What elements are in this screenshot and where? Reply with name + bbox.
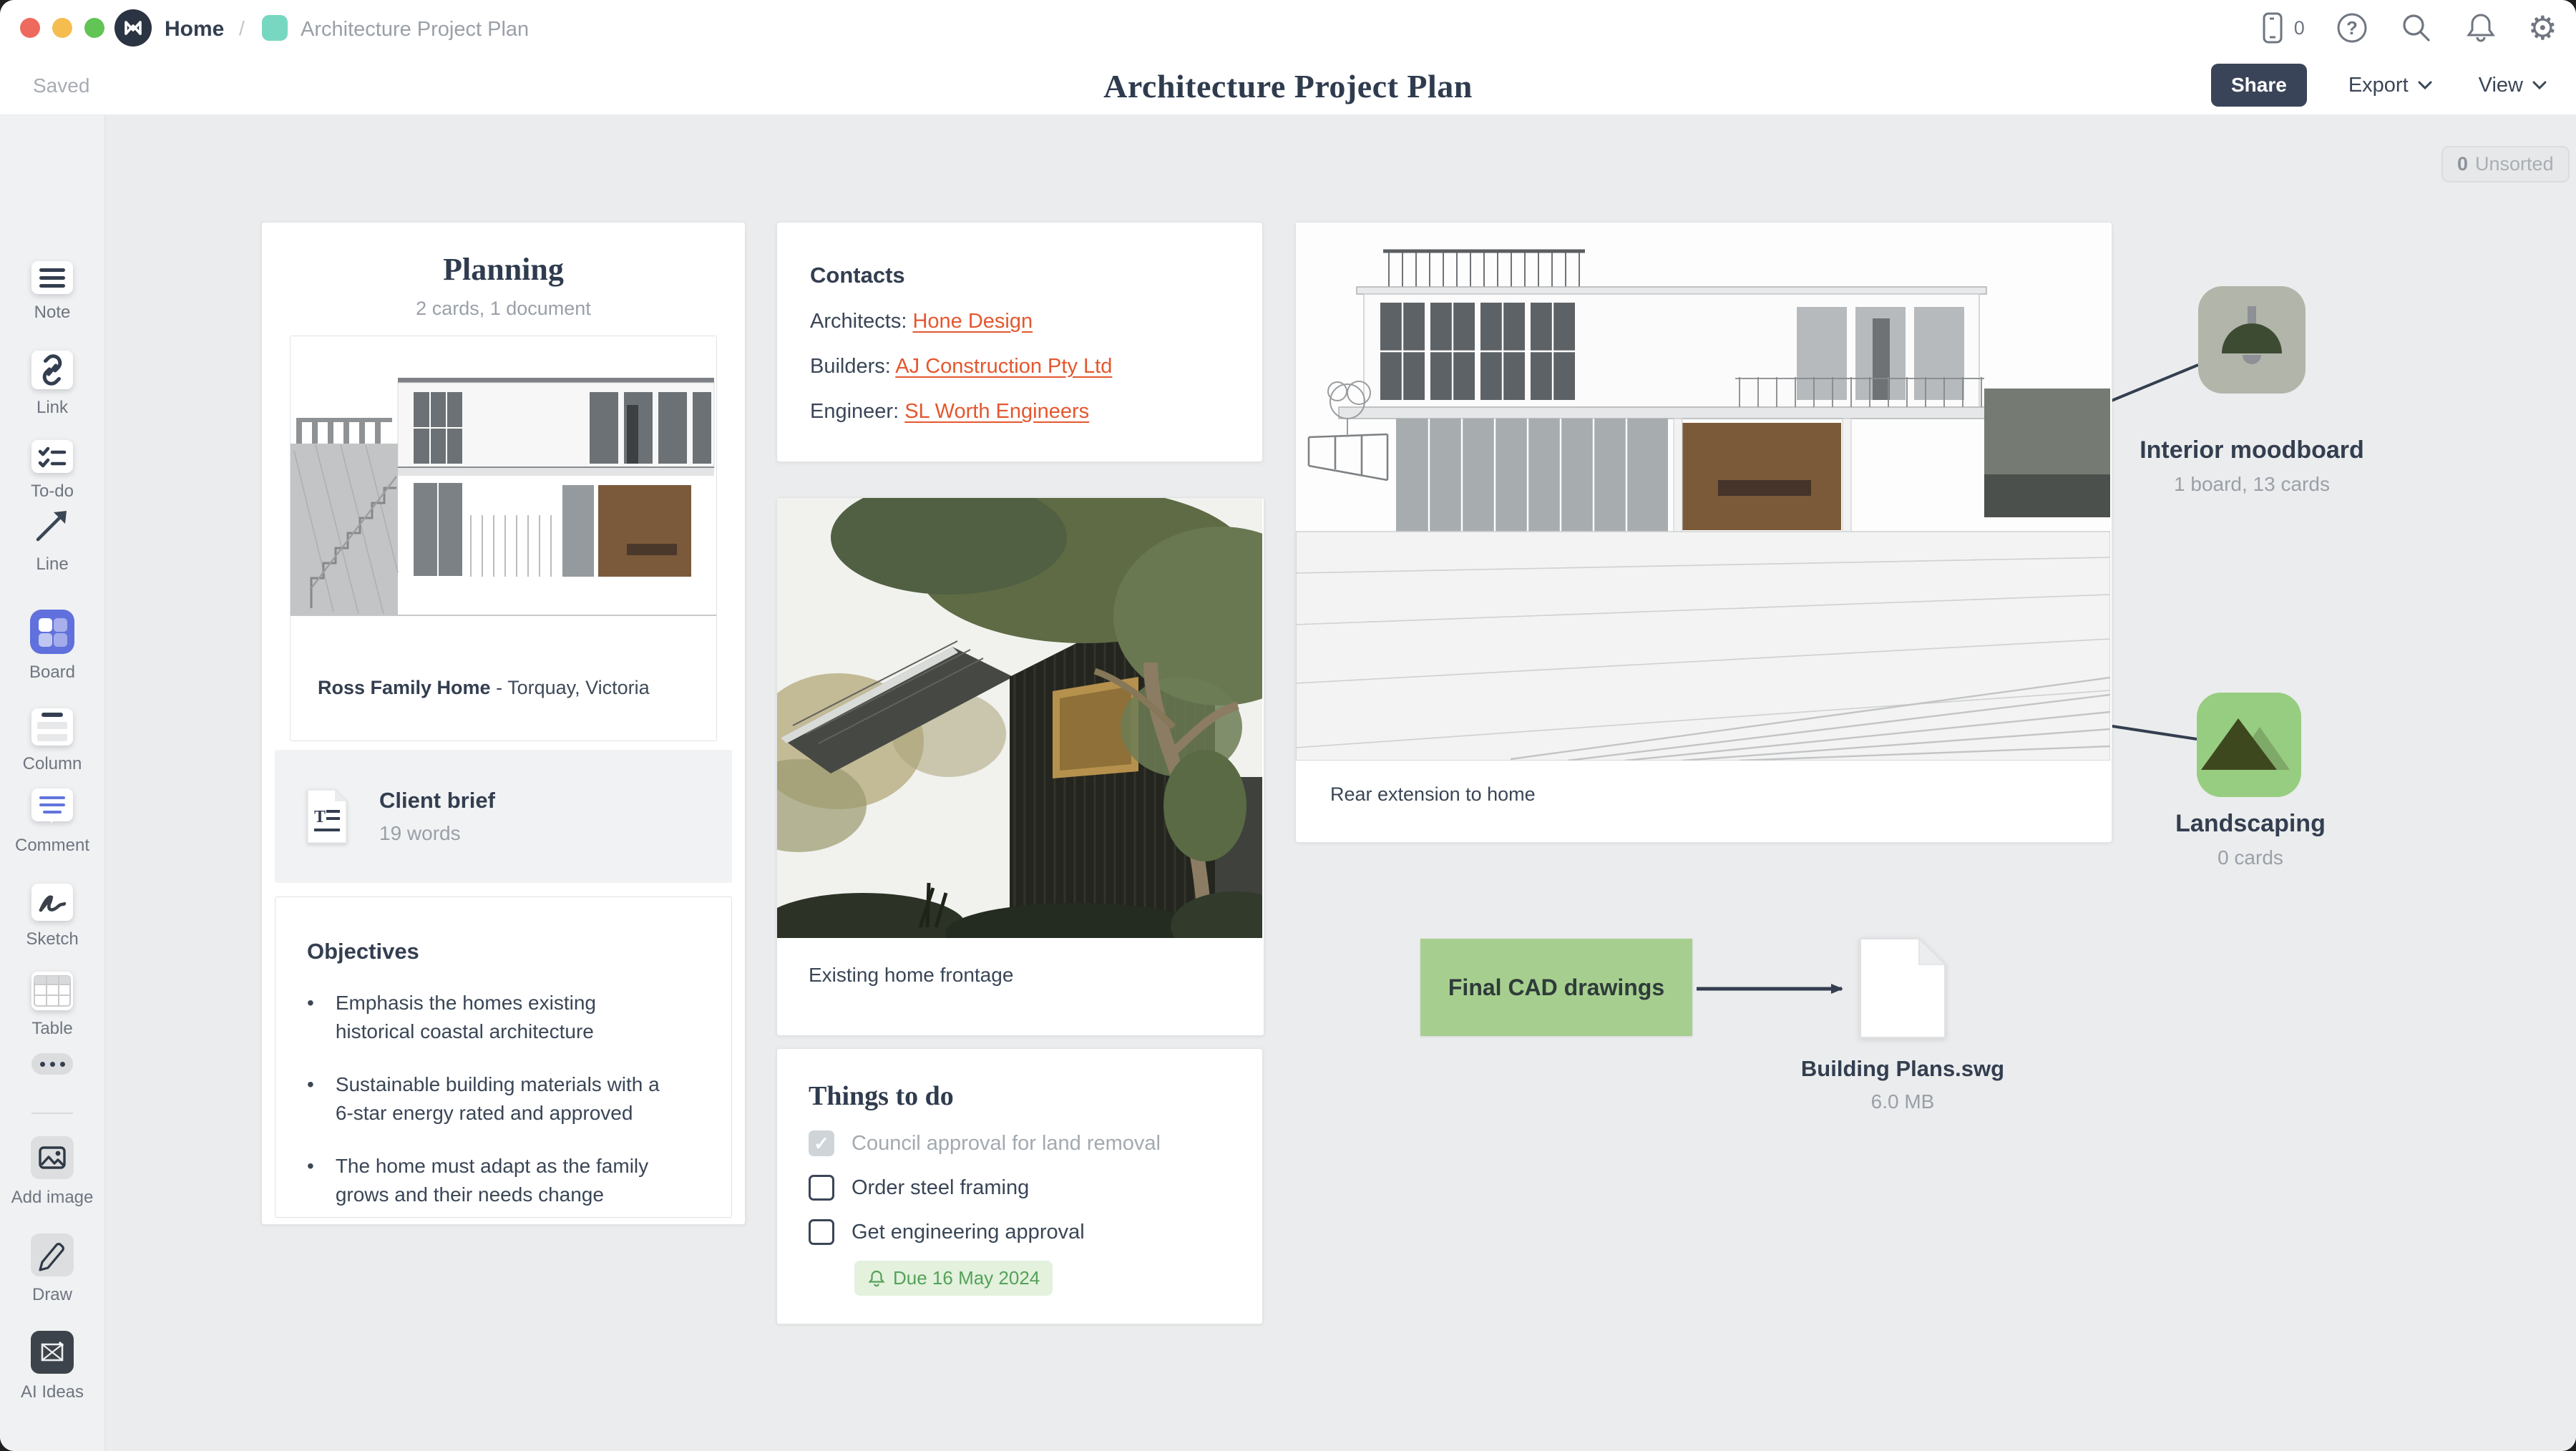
top-chrome: Home / Architecture Project Plan 0 ? — [0, 0, 2576, 115]
contacts-note[interactable]: Contacts Architects: Hone Design Builder… — [776, 222, 1263, 462]
frontage-image-card[interactable]: Existing home frontage — [776, 497, 1264, 1036]
cad-drawings-note[interactable]: Final CAD drawings — [1420, 939, 1692, 1036]
breadcrumb-home[interactable]: Home — [165, 17, 224, 41]
unsorted-badge[interactable]: 0Unsorted — [2441, 146, 2570, 182]
sidebar-item-line[interactable]: Line — [0, 504, 104, 575]
todo-title: Things to do — [809, 1080, 1262, 1112]
sidebar-item-comment[interactable]: Comment — [0, 788, 104, 856]
contact-row: Architects: Hone Design — [810, 310, 1262, 333]
tool-label: Add image — [0, 1188, 104, 1208]
bullet-glyph: • — [307, 1152, 314, 1209]
more-icon — [31, 1053, 73, 1075]
notifications-button[interactable] — [2464, 10, 2498, 46]
table-icon — [31, 972, 73, 1010]
objective-text: The home must adapt as the family grows … — [336, 1152, 679, 1209]
board-canvas[interactable]: 0Unsorted Planning 2 cards, 1 document — [104, 114, 2576, 1451]
file-icon — [1859, 937, 1946, 1039]
objective-item: • Sustainable building materials with a … — [307, 1070, 706, 1128]
objective-text: Emphasis the homes existing historical c… — [336, 989, 679, 1046]
contact-link[interactable]: Hone Design — [912, 310, 1033, 333]
image-caption[interactable]: Ross Family Home - Torquay, Victoria — [291, 653, 716, 699]
tool-label: Line — [0, 554, 104, 575]
sidebar-divider — [31, 1113, 73, 1114]
sidebar-item-table[interactable]: Table — [0, 972, 104, 1039]
file-label[interactable]: Building Plans.swg 6.0 MB — [1760, 1056, 2046, 1113]
todo-item: Get engineering approval — [809, 1219, 1262, 1245]
client-brief-document[interactable]: T Client brief 19 words — [275, 750, 732, 883]
contact-link[interactable]: SL Worth Engineers — [904, 400, 1089, 423]
contact-row: Engineer: SL Worth Engineers — [810, 400, 1262, 424]
comment-icon — [31, 788, 73, 821]
sidebar-item-link[interactable]: Link — [0, 351, 104, 418]
todo-card[interactable]: Things to do Council approval for land r… — [776, 1048, 1263, 1324]
sidebar-item-ai-ideas[interactable]: AI Ideas — [0, 1331, 104, 1402]
titlebar: Home / Architecture Project Plan 0 ? — [0, 0, 2576, 56]
line-icon — [0, 504, 104, 546]
checkbox-checked[interactable] — [809, 1130, 834, 1156]
file-size: 6.0 MB — [1760, 1090, 2046, 1113]
draw-icon — [31, 1233, 74, 1276]
due-date-badge[interactable]: Due 16 May 2024 — [854, 1261, 1053, 1296]
image-caption[interactable]: Rear extension to home — [1296, 761, 2112, 806]
help-icon: ? — [2335, 11, 2369, 45]
board-title: Interior moodboard — [2109, 436, 2395, 464]
board-meta: 0 cards — [2107, 846, 2394, 869]
tool-label: Column — [0, 754, 104, 774]
sidebar-more-button[interactable] — [0, 1053, 104, 1075]
checkbox-unchecked[interactable] — [809, 1219, 834, 1245]
tool-label: AI Ideas — [0, 1382, 104, 1402]
planning-column[interactable]: Planning 2 cards, 1 document — [261, 222, 746, 1225]
sidebar-item-note[interactable]: Note — [0, 261, 104, 323]
due-date-text: Due 16 May 2024 — [893, 1267, 1040, 1289]
breadcrumb-separator: / — [239, 17, 245, 40]
board-color-icon — [262, 15, 288, 41]
sidebar-item-sketch[interactable]: Sketch — [0, 884, 104, 949]
chevron-down-icon — [2417, 80, 2433, 91]
column-icon — [31, 708, 73, 746]
reminder-bell-icon — [867, 1269, 886, 1289]
traffic-light-close[interactable] — [20, 18, 40, 38]
todo-item-label: Council approval for land removal — [852, 1132, 1161, 1156]
note-icon — [31, 261, 73, 294]
frontage-photo — [777, 498, 1262, 938]
help-button[interactable]: ? — [2335, 11, 2369, 45]
app-window: Home / Architecture Project Plan 0 ? — [0, 0, 2576, 1451]
sidebar-item-add-image[interactable]: Add image — [0, 1136, 104, 1208]
board-header: Saved Architecture Project Plan Share Ex… — [0, 56, 2576, 114]
tool-label: Table — [0, 1019, 104, 1039]
search-icon — [2399, 11, 2434, 45]
svg-text:?: ? — [2346, 17, 2358, 39]
board-label-moodboard[interactable]: Interior moodboard 1 board, 13 cards — [2109, 436, 2395, 496]
unsorted-count: 0 — [2457, 153, 2468, 175]
mountains-icon — [2197, 693, 2301, 797]
search-button[interactable] — [2399, 11, 2434, 45]
elevation-image-card[interactable]: Ross Family Home - Torquay, Victoria — [290, 336, 717, 741]
objectives-note[interactable]: Objectives • Emphasis the homes existing… — [275, 897, 732, 1218]
document-meta: 19 words — [379, 822, 495, 845]
image-caption[interactable]: Existing home frontage — [777, 938, 1264, 987]
todo-item-label: Get engineering approval — [852, 1221, 1085, 1244]
file-name: Building Plans.swg — [1760, 1056, 2046, 1082]
traffic-light-minimize[interactable] — [52, 18, 72, 38]
contacts-heading: Contacts — [810, 263, 1262, 288]
ai-ideas-icon — [31, 1331, 74, 1374]
contact-label: Architects: — [810, 310, 912, 333]
tool-label: Link — [0, 398, 104, 418]
add-image-icon — [31, 1136, 74, 1179]
objectives-heading: Objectives — [307, 939, 706, 964]
tool-label: Board — [0, 663, 104, 683]
milanote-logo-icon — [114, 9, 152, 47]
tool-label: Draw — [0, 1285, 104, 1305]
sidebar-item-column[interactable]: Column — [0, 708, 104, 774]
sidebar-item-draw[interactable]: Draw — [0, 1233, 104, 1305]
board-meta: 1 board, 13 cards — [2109, 473, 2395, 496]
bullet-glyph: • — [307, 1070, 314, 1128]
link-icon — [31, 351, 73, 389]
tool-label: Note — [0, 303, 104, 323]
bell-icon — [2464, 10, 2498, 46]
svg-text:T: T — [314, 808, 326, 826]
page-title[interactable]: Architecture Project Plan — [0, 67, 2576, 105]
column-subtitle: 2 cards, 1 document — [262, 298, 745, 320]
sidebar-item-board[interactable]: Board — [0, 610, 104, 683]
view-label: View — [2479, 74, 2523, 97]
bullet-glyph: • — [307, 989, 314, 1046]
export-label: Export — [2348, 74, 2409, 97]
tool-label: To-do — [0, 482, 104, 502]
document-icon: T — [306, 788, 348, 844]
tool-sidebar: Note Link — [0, 114, 105, 1451]
view-button[interactable]: View — [2474, 73, 2552, 98]
file-building-plans[interactable] — [1859, 937, 1946, 1042]
elevation-render — [291, 336, 716, 653]
todo-item: Order steel framing — [809, 1175, 1262, 1201]
gear-icon: ⚙ — [2528, 11, 2557, 44]
rear-extension-render — [1296, 223, 2110, 761]
contact-row: Builders: AJ Construction Pty Ltd — [810, 355, 1262, 378]
sidebar-item-todo[interactable]: To-do — [0, 440, 104, 502]
share-button[interactable]: Share — [2211, 64, 2307, 107]
todo-item-label: Order steel framing — [852, 1176, 1029, 1200]
contact-label: Engineer: — [810, 400, 904, 423]
checkbox-unchecked[interactable] — [809, 1175, 834, 1201]
board-tool-icon — [30, 610, 74, 654]
tool-label: Sketch — [0, 929, 104, 949]
chevron-down-icon — [2532, 80, 2547, 91]
todo-item: Council approval for land removal — [809, 1130, 1262, 1156]
document-title: Client brief — [379, 788, 495, 814]
contact-link[interactable]: AJ Construction Pty Ltd — [895, 355, 1112, 378]
caption-rest: - Torquay, Victoria — [491, 677, 650, 698]
todo-icon — [31, 440, 73, 473]
caption-bold: Ross Family Home — [318, 677, 491, 698]
mobile-app-button[interactable]: 0 — [2257, 10, 2305, 46]
milanote-logo[interactable] — [114, 9, 152, 47]
objective-item: • Emphasis the homes existing historical… — [307, 989, 706, 1046]
traffic-light-zoom[interactable] — [84, 18, 104, 38]
rear-extension-image-card[interactable]: Rear extension to home — [1295, 222, 2112, 843]
settings-button[interactable]: ⚙ — [2528, 11, 2557, 44]
board-title: Landscaping — [2107, 810, 2394, 838]
column-title[interactable]: Planning — [262, 251, 745, 288]
contact-label: Builders: — [810, 355, 895, 378]
board-label-landscaping[interactable]: Landscaping 0 cards — [2107, 810, 2394, 869]
phone-icon — [2257, 10, 2288, 46]
sketch-icon — [31, 884, 73, 921]
device-count: 0 — [2294, 17, 2305, 39]
tool-label: Comment — [0, 836, 104, 856]
cad-note-text: Final CAD drawings — [1448, 974, 1664, 1001]
board-interior-moodboard[interactable] — [2198, 286, 2306, 394]
board-landscaping[interactable] — [2197, 693, 2301, 797]
pendant-lamp-icon — [2198, 286, 2306, 394]
objective-text: Sustainable building materials with a 6-… — [336, 1070, 679, 1128]
export-button[interactable]: Export — [2344, 73, 2437, 98]
breadcrumb-current[interactable]: Architecture Project Plan — [301, 18, 529, 41]
unsorted-label: Unsorted — [2475, 153, 2554, 175]
objective-item: • The home must adapt as the family grow… — [307, 1152, 706, 1209]
